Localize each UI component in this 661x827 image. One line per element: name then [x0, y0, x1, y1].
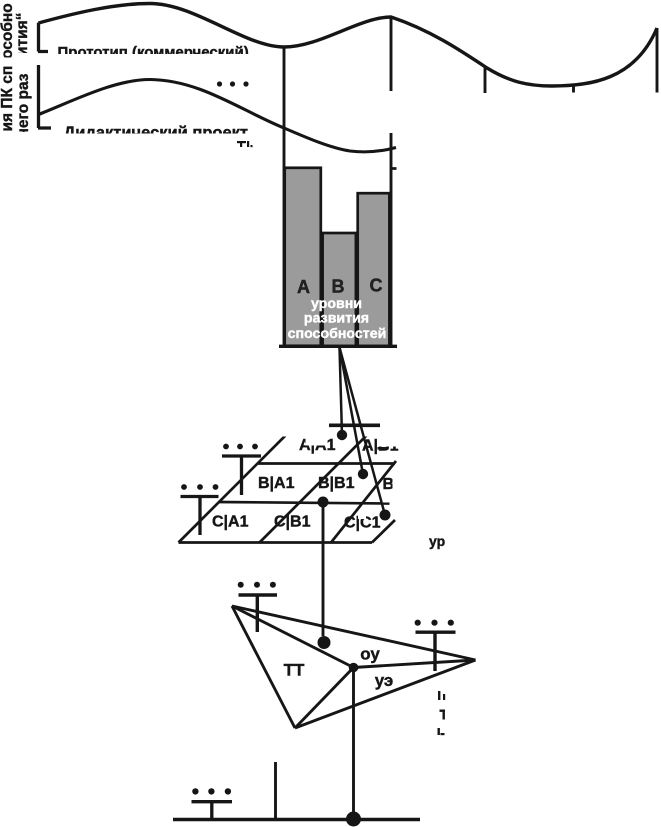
svg-text:ия ПК сп: ия ПК сп: [0, 66, 16, 132]
svg-text:ТТ: ТТ: [284, 661, 305, 680]
svg-text:развития: развития: [304, 311, 369, 327]
svg-text:В|А1: В|А1: [258, 475, 295, 492]
svg-text:С|А1: С|А1: [212, 514, 249, 531]
svg-text:способностей: способностей: [288, 326, 387, 342]
svg-text:уэ: уэ: [375, 671, 394, 690]
svg-text:ития“: ития“: [14, 13, 31, 56]
svg-text:С: С: [370, 276, 383, 296]
svg-text:А: А: [297, 277, 310, 297]
svg-text:В: В: [332, 277, 345, 297]
svg-text:оу: оу: [360, 645, 380, 664]
svg-text:него раз: него раз: [15, 73, 32, 137]
